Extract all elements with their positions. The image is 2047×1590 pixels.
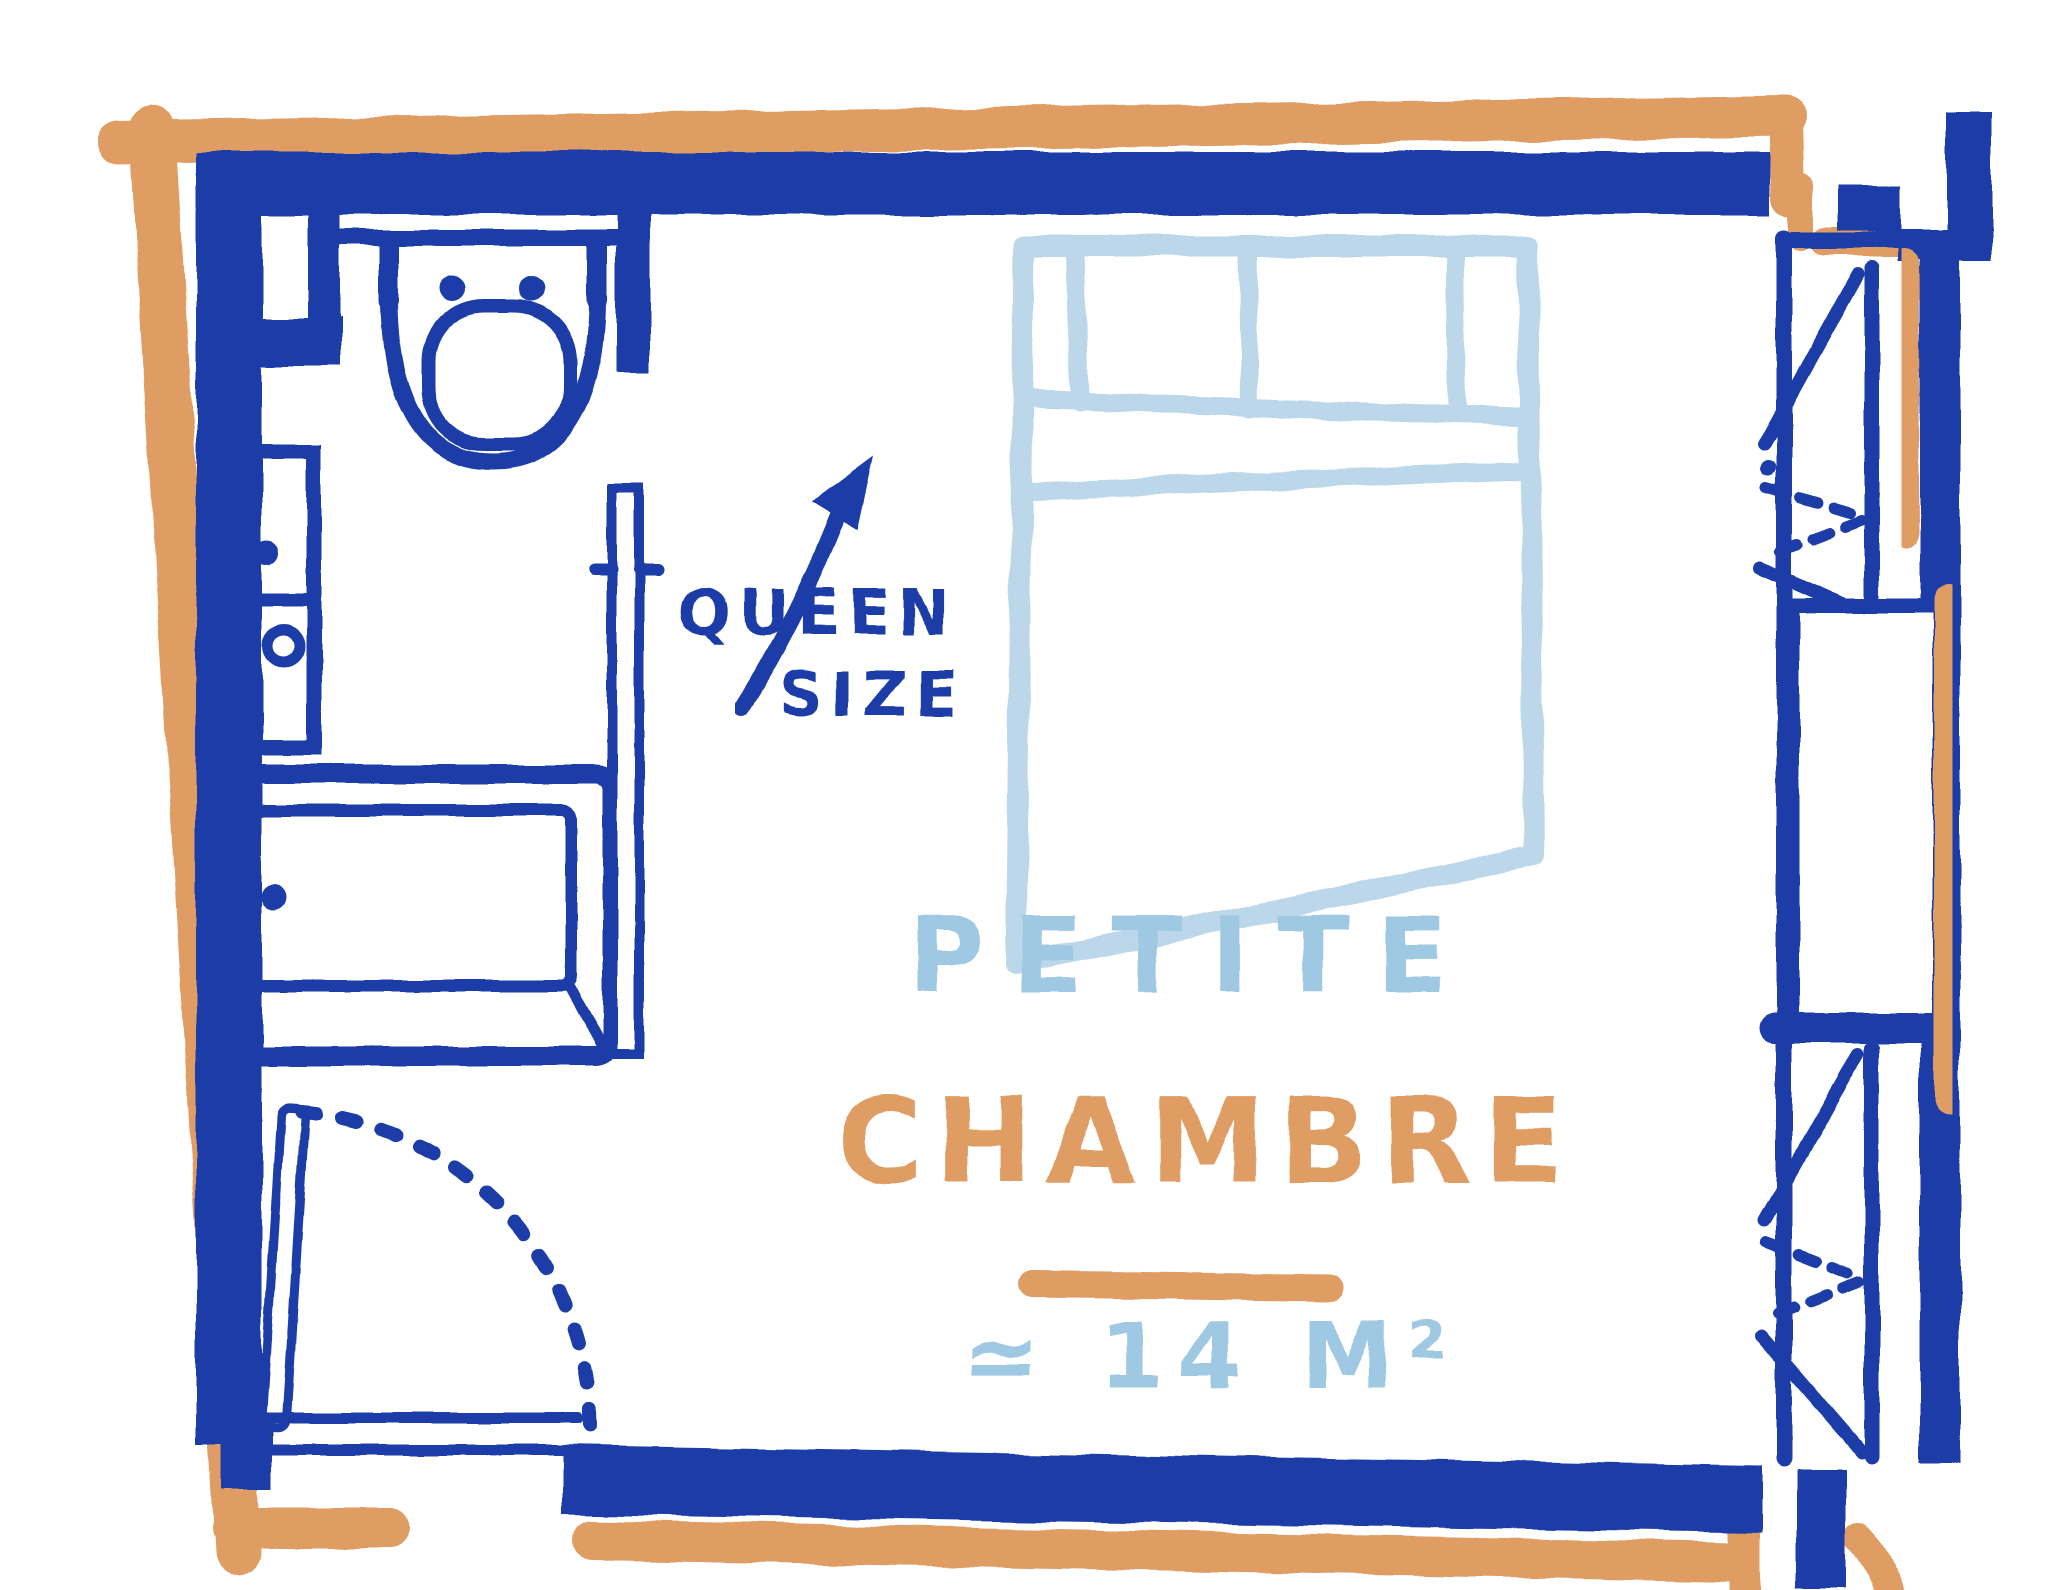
floor-plan-canvas: QUEEN SIZE PETITE CHAMBRE ≃ 14 M² xyxy=(0,0,2047,1590)
bathtub-outer xyxy=(216,774,612,1056)
bathtub-drain xyxy=(261,885,287,911)
label-size: SIZE xyxy=(778,658,965,731)
toilet-bolt-right xyxy=(519,275,545,301)
closet-column xyxy=(1760,238,1948,1458)
orange-bottom-stroke xyxy=(592,1540,1735,1562)
wall-bottom xyxy=(562,1445,1762,1532)
toilet-icon xyxy=(389,246,597,462)
floor-plan-page: QUEEN SIZE PETITE CHAMBRE ≃ 14 M² xyxy=(0,0,2047,1590)
bathroom xyxy=(208,246,658,1056)
wall-bottom-right-pier xyxy=(1796,1470,1846,1588)
entry-door xyxy=(262,1108,590,1450)
vanity-knob xyxy=(254,540,278,564)
bathtub-icon xyxy=(216,774,612,1056)
door-swing-arc xyxy=(302,1112,590,1432)
orange-corner-curl xyxy=(1858,1538,1888,1590)
wall-closet-corner-piece xyxy=(1838,186,1900,232)
bed-pillow-line xyxy=(1022,470,1532,492)
bathroom-pier-vertical xyxy=(308,212,340,320)
toilet-seat xyxy=(428,306,570,444)
wall-right-top-stub xyxy=(1946,112,1992,236)
bathtub-inner xyxy=(254,810,572,986)
label-chambre: CHAMBRE xyxy=(836,1072,1576,1210)
labels: QUEEN SIZE PETITE CHAMBRE ≃ 14 M² xyxy=(678,576,1576,1410)
toilet-bolt-left xyxy=(439,275,465,301)
queen-bed xyxy=(1016,246,1534,964)
vanity-drain-ring xyxy=(268,630,300,662)
door-leaf xyxy=(262,1108,305,1429)
label-petite: PETITE xyxy=(909,895,1476,1017)
arrow-head xyxy=(812,456,874,530)
label-queen: QUEEN xyxy=(678,576,958,649)
bathroom-pier-horizontal xyxy=(196,318,342,366)
label-underline xyxy=(1032,1284,1330,1288)
bed-headboard-divider-1 xyxy=(1075,248,1078,402)
bed-headboard-divider-2 xyxy=(1248,248,1250,408)
closet-compartment xyxy=(1792,606,1940,1020)
orange-top-stroke xyxy=(118,116,1786,142)
closet-orange-upper xyxy=(1904,262,1906,534)
bed-headboard-divider-3 xyxy=(1455,248,1457,414)
wall-top xyxy=(198,152,1770,215)
bathtub-corner-right xyxy=(568,984,602,1046)
label-area: ≃ 14 M² xyxy=(962,1303,1461,1410)
